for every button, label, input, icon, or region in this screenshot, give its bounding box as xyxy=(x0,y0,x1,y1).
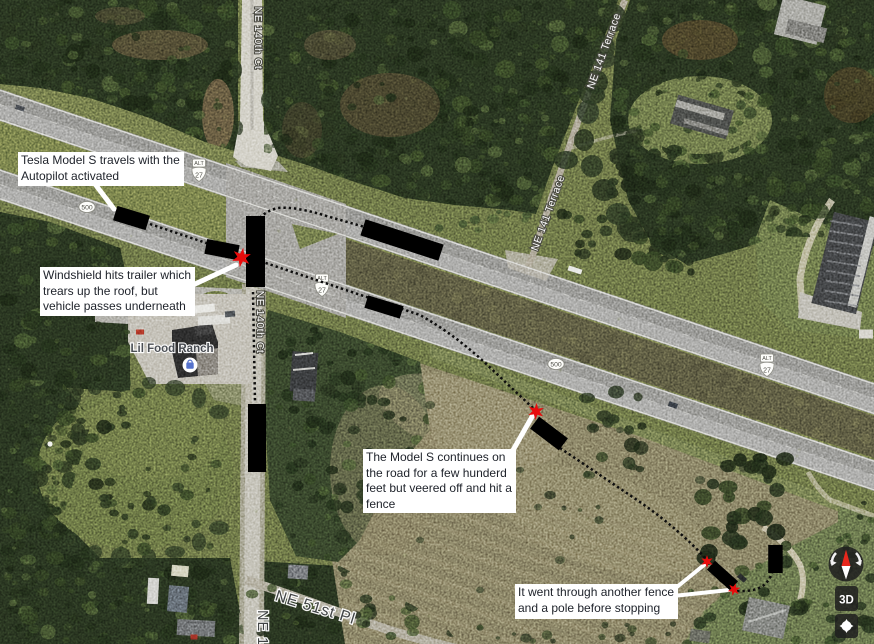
svg-text:500: 500 xyxy=(550,361,562,368)
svg-text:NE 140th Ct: NE 140th Ct xyxy=(254,291,266,354)
svg-text:27: 27 xyxy=(763,368,771,375)
svg-text:ALT: ALT xyxy=(762,356,772,362)
svg-text:NE 140th Ct: NE 140th Ct xyxy=(252,7,264,70)
svg-text:27: 27 xyxy=(195,173,203,180)
svg-text:Lil Food Ranch: Lil Food Ranch xyxy=(130,343,213,355)
svg-text:3D: 3D xyxy=(839,595,854,607)
svg-text:NE 140th Ct: NE 140th Ct xyxy=(254,610,270,644)
svg-text:27: 27 xyxy=(318,288,326,295)
svg-text:500: 500 xyxy=(81,204,93,211)
svg-text:ALT: ALT xyxy=(194,161,204,167)
